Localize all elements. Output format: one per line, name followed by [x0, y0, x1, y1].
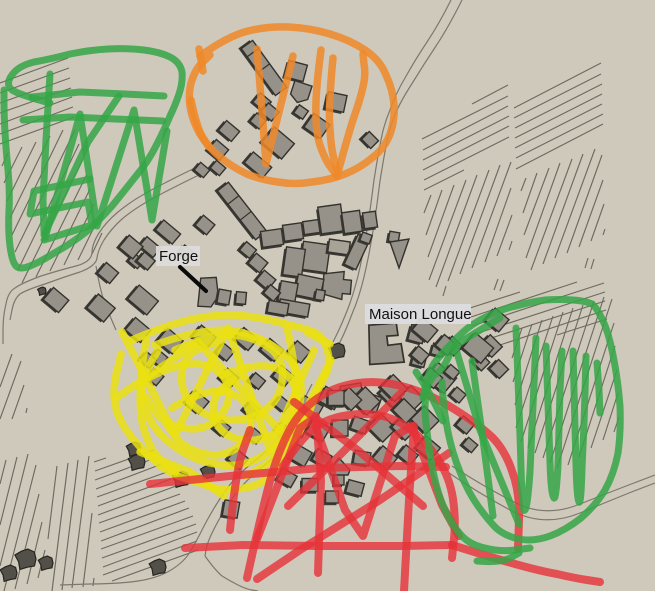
svg-text:Forge: Forge — [159, 248, 198, 265]
svg-text:Maison Longue: Maison Longue — [369, 306, 472, 323]
